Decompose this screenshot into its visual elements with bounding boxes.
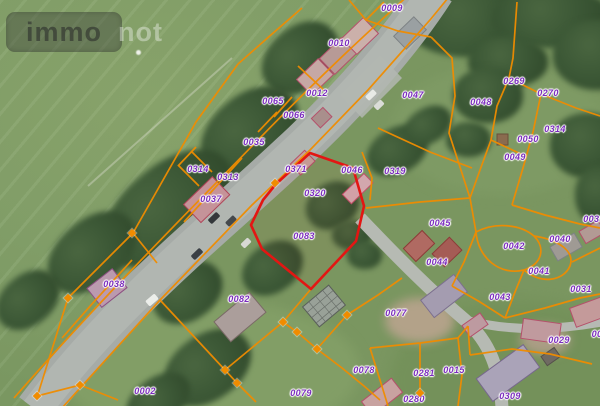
boundary-vertex-marker-9 [221,366,229,374]
watermark-text-bold: immo [26,17,102,48]
cadastral-aerial-map: 0009001000120047026902700048006500660035… [0,0,600,406]
boundary-vertex-marker-7 [313,345,321,353]
boundary-vertex-marker-0 [271,179,279,187]
watermark-pill: immo [6,12,122,52]
boundary-vertex-marker-6 [293,328,301,336]
boundary-vertex-marker-4 [76,381,84,389]
boundary-vertex-marker-2 [64,294,72,302]
boundary-vertex-marker-8 [343,311,351,319]
vertex-markers [0,0,600,406]
boundary-vertex-marker-3 [33,392,41,400]
boundary-vertex-marker-5 [279,318,287,326]
boundary-vertex-marker-1 [128,229,136,237]
watermark-text-light: not [118,17,163,48]
watermark: immo not [6,12,163,52]
boundary-vertex-marker-11 [416,389,424,397]
boundary-vertex-marker-10 [233,379,241,387]
